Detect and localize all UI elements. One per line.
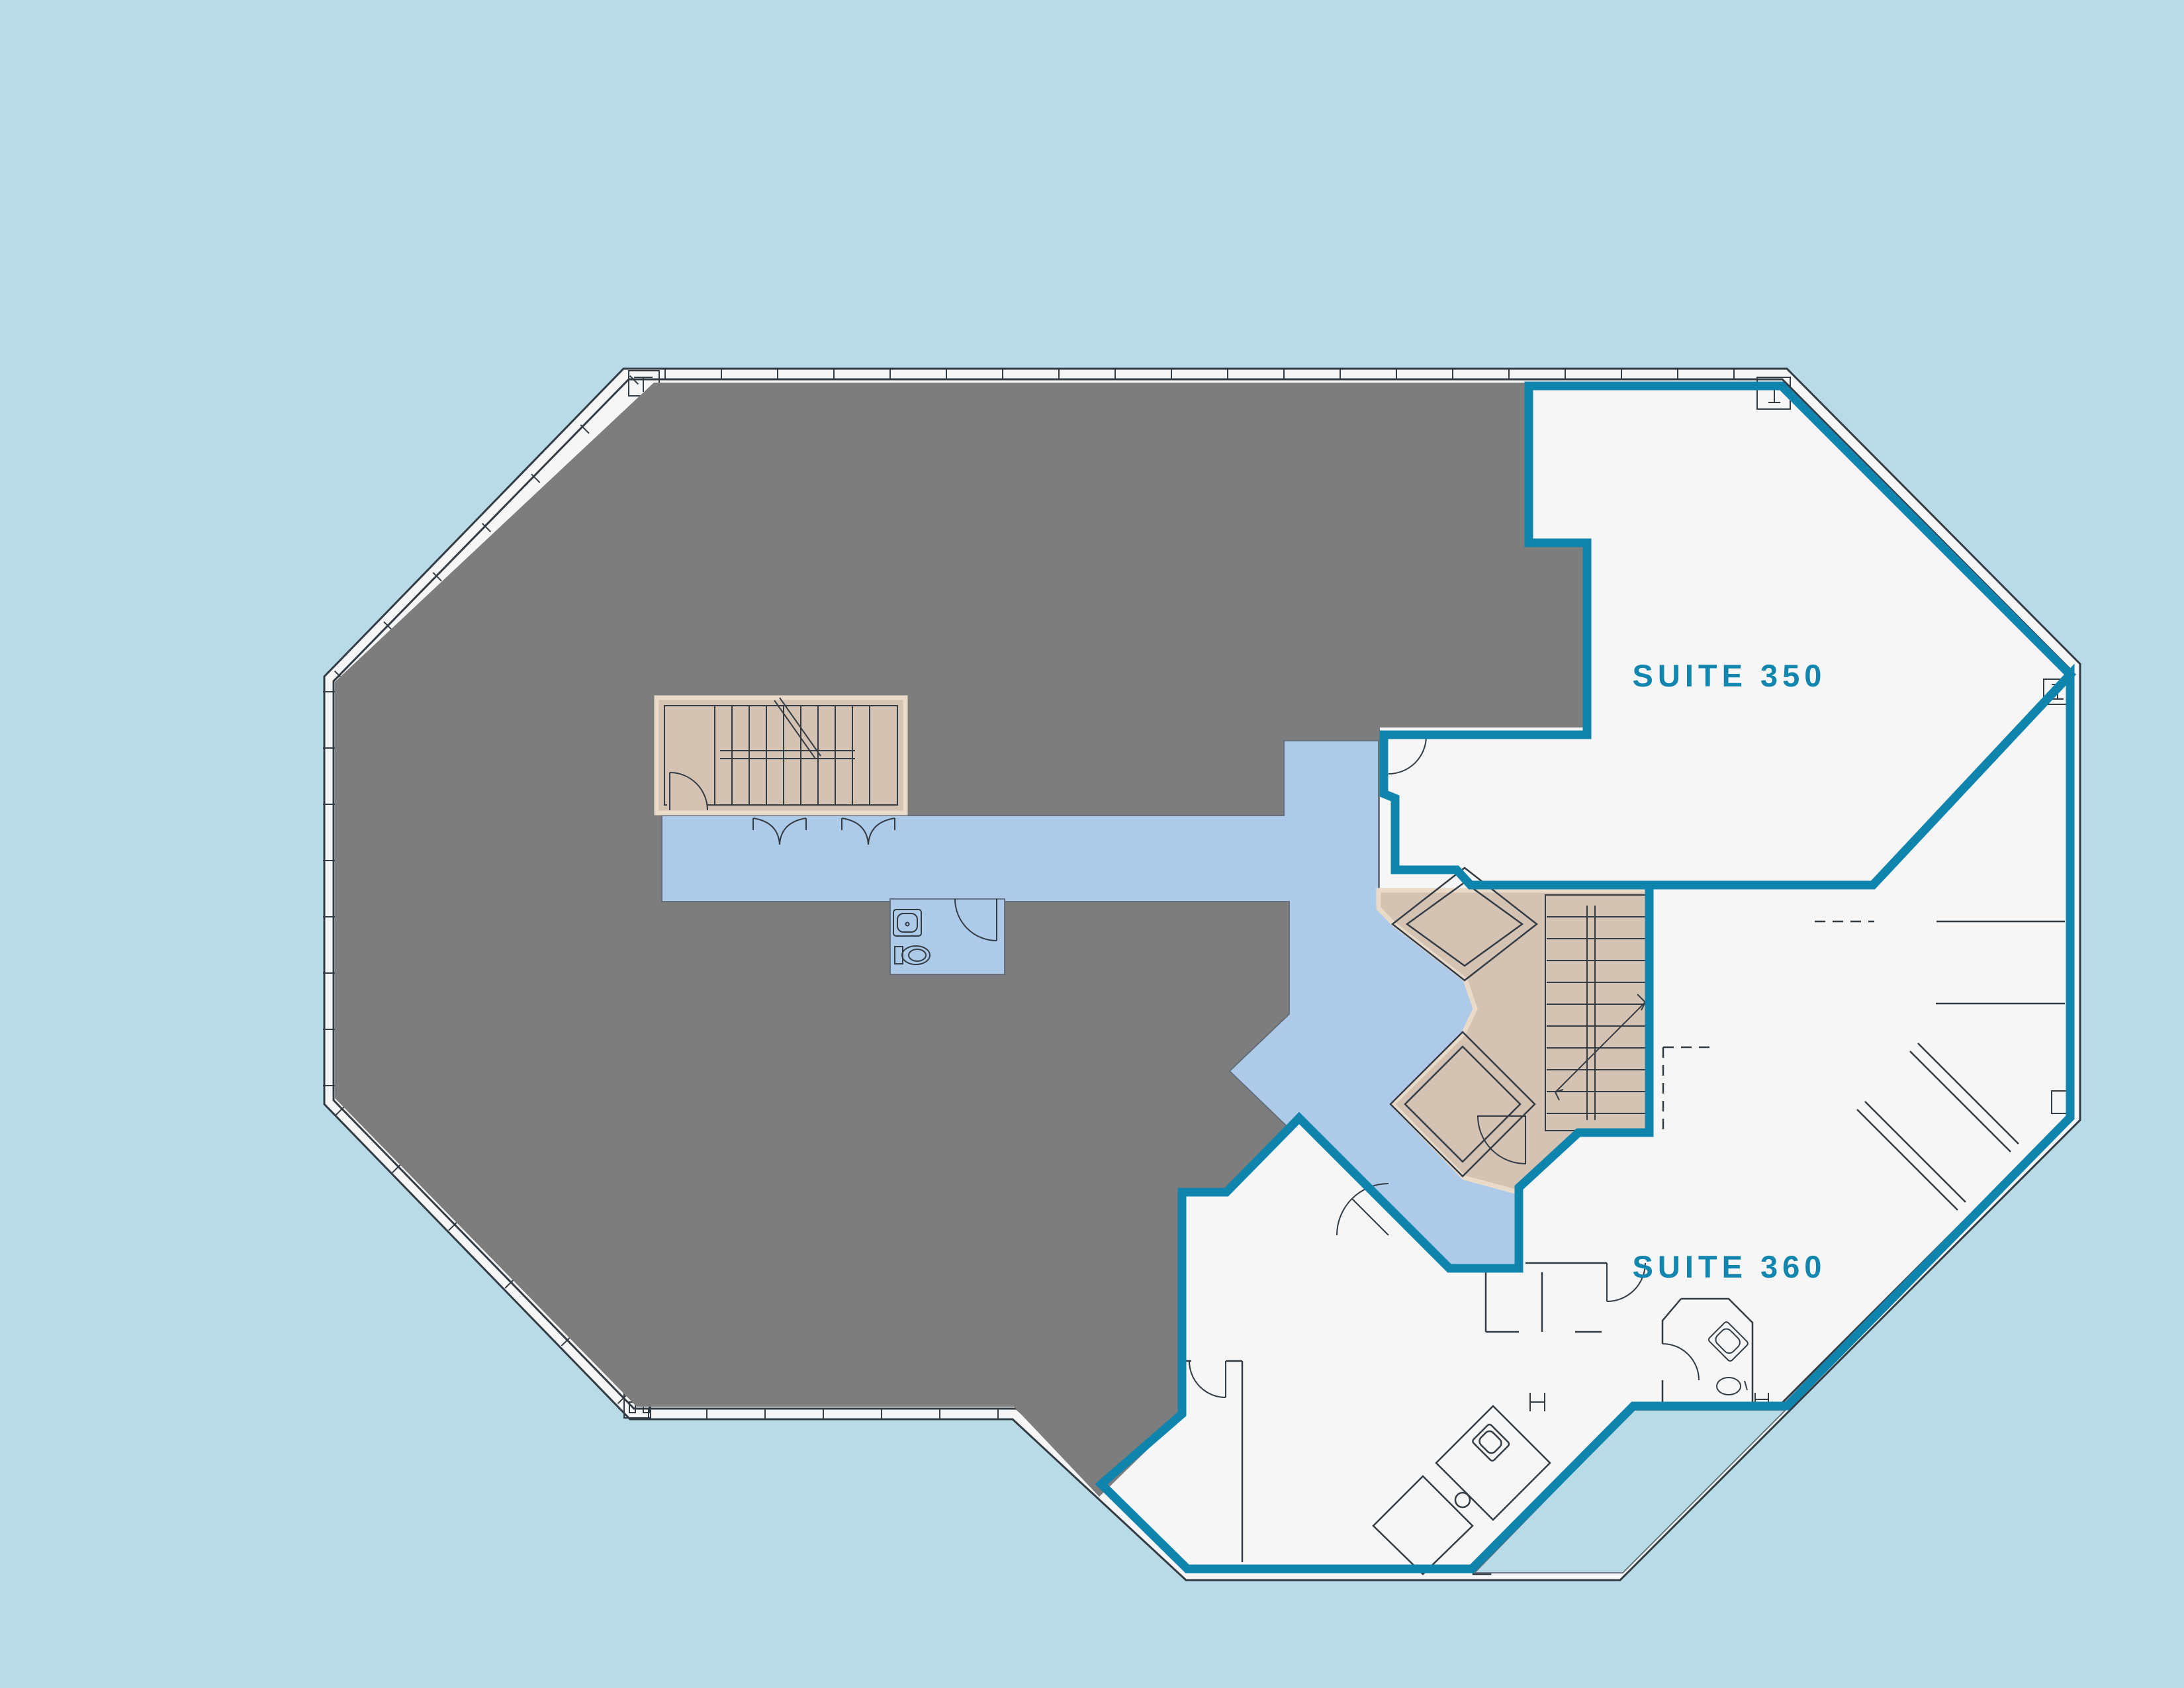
floor-plan: SUITE 350 SUITE 360	[0, 0, 2184, 1688]
stairwell-west	[657, 698, 905, 813]
stairwell-west-box	[657, 698, 905, 813]
restroom	[890, 899, 1005, 974]
suite-350-label: SUITE 350	[1633, 658, 1827, 693]
suite-360-label: SUITE 360	[1633, 1249, 1827, 1284]
